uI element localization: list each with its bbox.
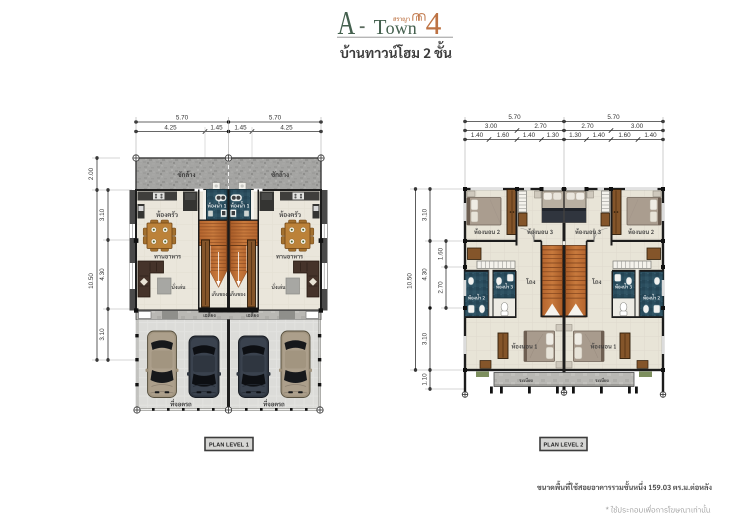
- svg-text:PLAN LEVEL 1: PLAN LEVEL 1: [209, 442, 249, 448]
- svg-text:1.30: 1.30: [569, 132, 582, 139]
- svg-text:5.70: 5.70: [176, 115, 189, 122]
- svg-text:1.45: 1.45: [234, 124, 247, 131]
- svg-text:5.70: 5.70: [607, 114, 620, 121]
- svg-text:5.70: 5.70: [269, 115, 282, 122]
- svg-text:1.60: 1.60: [497, 132, 510, 139]
- svg-text:2.70: 2.70: [534, 123, 547, 130]
- svg-text:1.40: 1.40: [523, 132, 536, 139]
- svg-text:3.10: 3.10: [422, 332, 429, 345]
- svg-text:1.40: 1.40: [593, 132, 606, 139]
- svg-text:3.10: 3.10: [99, 208, 106, 221]
- svg-text:5.70: 5.70: [508, 114, 521, 121]
- svg-text:1.60: 1.60: [438, 247, 445, 260]
- svg-text:10.50: 10.50: [88, 273, 95, 289]
- svg-text:2.70: 2.70: [438, 281, 445, 294]
- svg-text:10.50: 10.50: [407, 273, 414, 289]
- svg-text:1.40: 1.40: [644, 132, 657, 139]
- svg-text:3.00: 3.00: [631, 123, 644, 130]
- svg-text:3.00: 3.00: [485, 123, 498, 130]
- svg-text:1.45: 1.45: [210, 124, 223, 131]
- svg-text:4.30: 4.30: [422, 268, 429, 281]
- svg-text:4.30: 4.30: [99, 268, 106, 281]
- svg-text:1.60: 1.60: [618, 132, 631, 139]
- svg-text:1.30: 1.30: [547, 132, 560, 139]
- svg-text:PLAN LEVEL 2: PLAN LEVEL 2: [544, 442, 584, 448]
- svg-text:4.25: 4.25: [280, 124, 293, 131]
- svg-text:1.10: 1.10: [422, 373, 429, 386]
- svg-text:2.00: 2.00: [88, 167, 95, 180]
- svg-text:3.10: 3.10: [99, 328, 106, 341]
- svg-text:2.70: 2.70: [581, 123, 594, 130]
- svg-text:1.40: 1.40: [471, 132, 484, 139]
- svg-text:4.25: 4.25: [164, 124, 177, 131]
- svg-text:A: A: [337, 6, 355, 43]
- svg-text:3.10: 3.10: [422, 208, 429, 221]
- svg-text:4: 4: [426, 6, 442, 41]
